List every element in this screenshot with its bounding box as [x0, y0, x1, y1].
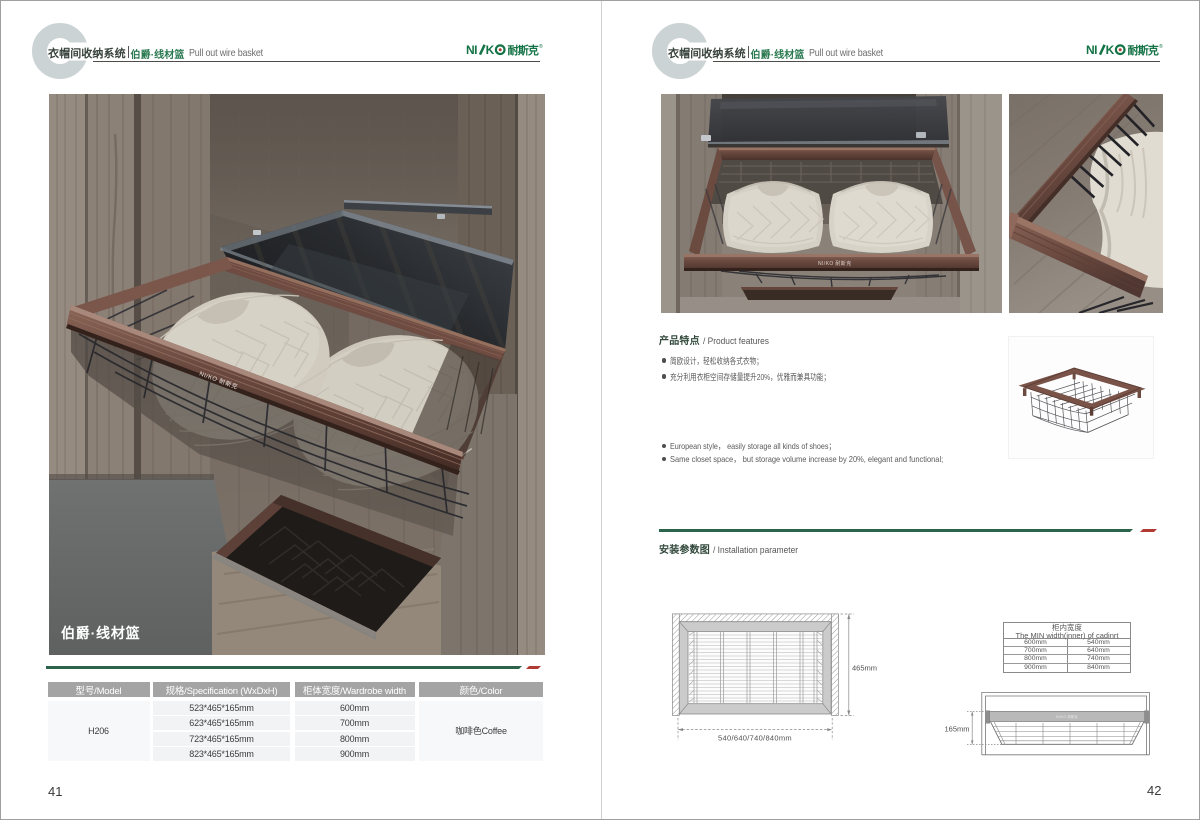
svg-text:耐斯克: 耐斯克 — [508, 43, 539, 57]
svg-text:K: K — [1106, 43, 1115, 57]
svg-text:®: ® — [1159, 43, 1163, 50]
svg-text:K: K — [486, 43, 495, 57]
svg-text:465mm: 465mm — [852, 664, 877, 673]
svg-text:NI/KO 耐斯克: NI/KO 耐斯克 — [818, 260, 852, 267]
svg-text:NI: NI — [466, 43, 477, 57]
svg-text:伯爵·线材篮: 伯爵·线材篮 — [61, 625, 140, 641]
svg-text:耐斯克: 耐斯克 — [1128, 43, 1159, 57]
svg-text:NI/KO 耐斯克: NI/KO 耐斯克 — [1056, 714, 1078, 719]
svg-text:540/640/740/840mm: 540/640/740/840mm — [718, 734, 792, 743]
svg-text:165mm: 165mm — [945, 725, 970, 734]
svg-text:NI: NI — [1086, 43, 1097, 57]
svg-text:®: ® — [539, 43, 543, 50]
